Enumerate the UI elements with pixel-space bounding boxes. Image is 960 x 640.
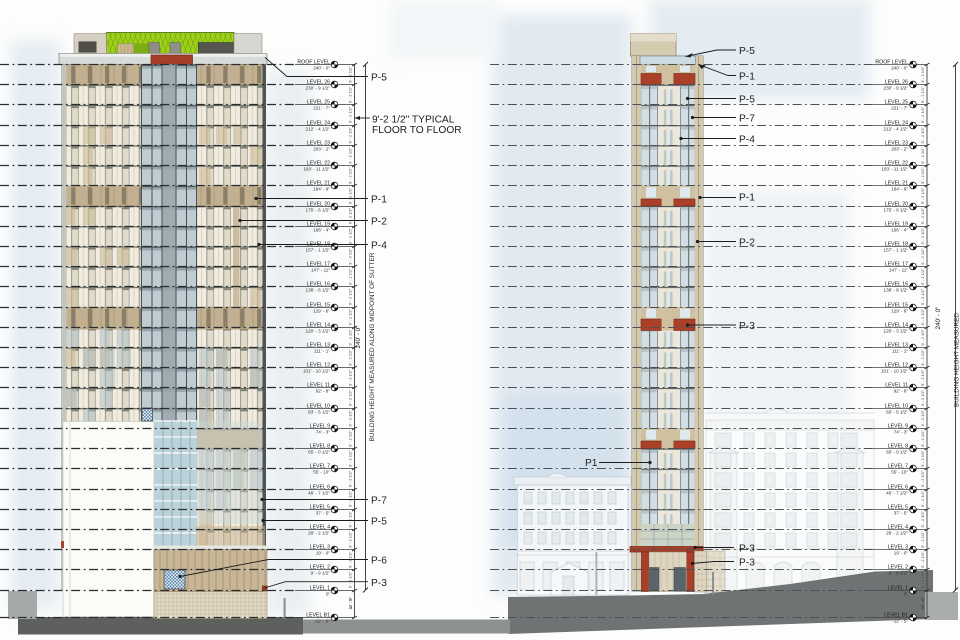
svg-text:9' - 2 1/2": 9' - 2 1/2" bbox=[920, 66, 925, 83]
svg-text:74' - 3": 74' - 3" bbox=[894, 430, 909, 435]
svg-text:46' - 7 1/2": 46' - 7 1/2" bbox=[886, 491, 908, 496]
svg-text:LEVEL 3: LEVEL 3 bbox=[310, 544, 330, 550]
svg-text:-12' - 5": -12' - 5" bbox=[314, 619, 330, 624]
svg-text:230' - 9 1/2": 230' - 9 1/2" bbox=[306, 86, 331, 91]
svg-text:LEVEL 11: LEVEL 11 bbox=[307, 382, 330, 388]
svg-text:LEVEL 8: LEVEL 8 bbox=[888, 443, 908, 449]
svg-text:LEVEL 26: LEVEL 26 bbox=[885, 79, 908, 85]
svg-text:221' - 7": 221' - 7" bbox=[313, 106, 330, 111]
svg-text:P1: P1 bbox=[585, 458, 598, 469]
svg-text:P-5: P-5 bbox=[739, 46, 755, 57]
svg-text:9' - 2 1/2": 9' - 2 1/2" bbox=[348, 409, 353, 426]
svg-text:111' - 1": 111' - 1" bbox=[314, 349, 330, 354]
svg-text:111' - 1": 111' - 1" bbox=[892, 349, 908, 354]
svg-text:P-1: P-1 bbox=[371, 195, 387, 206]
svg-text:9' - 2 1/2": 9' - 2 1/2" bbox=[348, 470, 353, 487]
svg-text:LEVEL 19: LEVEL 19 bbox=[885, 221, 908, 227]
svg-text:193' - 11 1/2": 193' - 11 1/2" bbox=[303, 167, 330, 172]
svg-text:9' - 2 1/2": 9' - 2 1/2" bbox=[920, 147, 925, 164]
svg-text:LEVEL 23: LEVEL 23 bbox=[885, 140, 908, 146]
svg-text:175' - 6 1/2": 175' - 6 1/2" bbox=[884, 208, 909, 213]
svg-text:ROOF LEVEL: ROOF LEVEL bbox=[875, 59, 908, 65]
svg-text:9' - 2 1/2": 9' - 2 1/2" bbox=[348, 531, 353, 548]
svg-text:12' - 6": 12' - 6" bbox=[920, 596, 925, 609]
svg-text:LEVEL 3: LEVEL 3 bbox=[888, 544, 908, 550]
svg-text:LEVEL 21: LEVEL 21 bbox=[307, 180, 330, 186]
svg-text:9' - 2 1/2": 9' - 2 1/2" bbox=[348, 187, 353, 204]
svg-text:LEVEL 22: LEVEL 22 bbox=[307, 160, 330, 166]
svg-text:LEVEL B1: LEVEL B1 bbox=[884, 612, 908, 618]
svg-text:166' - 4": 166' - 4" bbox=[313, 228, 330, 233]
svg-text:LEVEL 2: LEVEL 2 bbox=[888, 564, 908, 570]
svg-text:LEVEL 16: LEVEL 16 bbox=[307, 281, 330, 287]
svg-text:LEVEL 16: LEVEL 16 bbox=[885, 281, 908, 287]
svg-text:9' - 2 1/2": 9' - 2 1/2" bbox=[348, 106, 353, 123]
svg-text:LEVEL 12: LEVEL 12 bbox=[307, 362, 330, 368]
svg-text:-12' - 5": -12' - 5" bbox=[892, 619, 908, 624]
svg-text:9' - 2 1/2": 9' - 2 1/2" bbox=[920, 490, 925, 507]
svg-text:LEVEL 15: LEVEL 15 bbox=[885, 302, 908, 308]
svg-text:LEVEL 25: LEVEL 25 bbox=[885, 99, 908, 105]
svg-text:LEVEL 14: LEVEL 14 bbox=[307, 322, 330, 328]
svg-text:LEVEL 5: LEVEL 5 bbox=[888, 504, 908, 510]
svg-text:LEVEL 13: LEVEL 13 bbox=[885, 342, 908, 348]
svg-text:120' - 3 1/2": 120' - 3 1/2" bbox=[306, 329, 331, 334]
svg-text:LEVEL 20: LEVEL 20 bbox=[885, 201, 908, 207]
svg-text:19' - 0": 19' - 0" bbox=[894, 551, 909, 556]
svg-text:203' - 2": 203' - 2" bbox=[313, 147, 330, 152]
svg-text:9' - 2 1/2": 9' - 2 1/2" bbox=[348, 167, 353, 184]
svg-text:0": 0" bbox=[326, 592, 331, 597]
svg-text:9' - 2 1/2": 9' - 2 1/2" bbox=[920, 126, 925, 143]
svg-text:175' - 6 1/2": 175' - 6 1/2" bbox=[306, 208, 331, 213]
svg-text:LEVEL 23: LEVEL 23 bbox=[307, 140, 330, 146]
svg-text:9' - 2 1/2": 9' - 2 1/2" bbox=[920, 571, 925, 588]
svg-text:P-3: P-3 bbox=[739, 544, 755, 555]
svg-text:9' - 2 1/2": 9' - 2 1/2" bbox=[348, 308, 353, 325]
svg-text:9' - 2 1/2": 9' - 2 1/2" bbox=[348, 126, 353, 143]
svg-text:9' - 2 1/2": 9' - 2 1/2" bbox=[348, 430, 353, 447]
svg-text:LEVEL 4: LEVEL 4 bbox=[888, 524, 908, 530]
svg-text:9' - 2 1/2": 9' - 2 1/2" bbox=[348, 227, 353, 244]
svg-text:P-7: P-7 bbox=[739, 114, 755, 125]
svg-text:9' - 2 1/2": 9' - 2 1/2" bbox=[920, 167, 925, 184]
svg-text:46' - 7 1/2": 46' - 7 1/2" bbox=[308, 491, 330, 496]
svg-text:LEVEL 6: LEVEL 6 bbox=[888, 484, 908, 490]
svg-text:P-4: P-4 bbox=[739, 135, 755, 146]
svg-text:9' - 2 1/2": 9' - 2 1/2" bbox=[920, 308, 925, 325]
svg-text:0": 0" bbox=[904, 592, 909, 597]
svg-text:9' - 9 1/2": 9' - 9 1/2" bbox=[311, 571, 331, 576]
svg-text:83' - 5 1/2": 83' - 5 1/2" bbox=[308, 410, 330, 415]
svg-text:FLOOR TO FLOOR: FLOOR TO FLOOR bbox=[372, 125, 462, 136]
svg-text:LEVEL 25: LEVEL 25 bbox=[307, 99, 330, 105]
svg-text:65' - 0 1/2": 65' - 0 1/2" bbox=[308, 450, 330, 455]
svg-text:LEVEL 4: LEVEL 4 bbox=[310, 524, 330, 530]
svg-text:LEVEL 20: LEVEL 20 bbox=[307, 201, 330, 207]
svg-text:240' - 0": 240' - 0" bbox=[891, 66, 908, 71]
svg-text:P-3: P-3 bbox=[739, 558, 755, 569]
svg-text:92' - 8": 92' - 8" bbox=[894, 389, 909, 394]
svg-text:157' - 1 1/2": 157' - 1 1/2" bbox=[884, 248, 909, 253]
svg-text:P-1: P-1 bbox=[739, 72, 755, 83]
svg-text:19' - 0": 19' - 0" bbox=[316, 551, 331, 556]
svg-text:9' - 2 1/2": 9' - 2 1/2" bbox=[348, 389, 353, 406]
svg-text:LEVEL 10: LEVEL 10 bbox=[307, 403, 330, 409]
svg-text:LEVEL 22: LEVEL 22 bbox=[885, 160, 908, 166]
svg-text:28' - 2 1/2": 28' - 2 1/2" bbox=[886, 531, 908, 536]
svg-text:203' - 2": 203' - 2" bbox=[891, 147, 908, 152]
svg-text:9' - 2 1/2": 9' - 2 1/2" bbox=[920, 470, 925, 487]
svg-text:ROOF LEVEL: ROOF LEVEL bbox=[297, 59, 330, 65]
svg-text:55' - 10": 55' - 10" bbox=[313, 470, 330, 475]
svg-text:9' - 9 1/2": 9' - 9 1/2" bbox=[889, 571, 909, 576]
svg-text:212' - 4 1/2": 212' - 4 1/2" bbox=[884, 127, 909, 132]
svg-text:9' - 2 1/2": 9' - 2 1/2" bbox=[920, 106, 925, 123]
svg-text:9' - 2 1/2": 9' - 2 1/2" bbox=[920, 389, 925, 406]
svg-text:LEVEL 13: LEVEL 13 bbox=[307, 342, 330, 348]
svg-text:9' - 2 1/2": 9' - 2 1/2" bbox=[920, 369, 925, 386]
svg-text:120' - 3 1/2": 120' - 3 1/2" bbox=[884, 329, 909, 334]
svg-text:9' - 2 1/2": 9' - 2 1/2" bbox=[920, 248, 925, 265]
svg-text:P-5: P-5 bbox=[371, 73, 387, 84]
svg-text:9' - 2 1/2": 9' - 2 1/2" bbox=[348, 369, 353, 386]
svg-text:9' - 2 1/2": 9' - 2 1/2" bbox=[920, 227, 925, 244]
svg-text:9' - 2 1/2": 9' - 2 1/2" bbox=[348, 268, 353, 285]
svg-text:9' - 2 1/2": 9' - 2 1/2" bbox=[348, 288, 353, 305]
svg-text:LEVEL 26: LEVEL 26 bbox=[307, 79, 330, 85]
svg-text:P-5: P-5 bbox=[739, 95, 755, 106]
svg-text:28' - 2 1/2": 28' - 2 1/2" bbox=[308, 531, 330, 536]
svg-text:LEVEL B1: LEVEL B1 bbox=[306, 612, 330, 618]
svg-text:9' - 2 1/2": 9' - 2 1/2" bbox=[920, 430, 925, 447]
svg-text:37' - 5": 37' - 5" bbox=[894, 511, 909, 516]
svg-text:240' - 0": 240' - 0" bbox=[313, 66, 330, 71]
svg-text:P-2: P-2 bbox=[739, 238, 755, 249]
svg-text:LEVEL 6: LEVEL 6 bbox=[310, 484, 330, 490]
svg-text:BUILDING HEIGHT MEASURED ALONG: BUILDING HEIGHT MEASURED ALONG MIDPOINT … bbox=[369, 252, 376, 441]
svg-text:9' - 2 1/2": 9' - 2 1/2" bbox=[920, 510, 925, 527]
svg-text:9' - 2 1/2": 9' - 2 1/2" bbox=[920, 86, 925, 103]
svg-text:9' - 2 1/2": 9' - 2 1/2" bbox=[348, 207, 353, 224]
svg-text:55' - 10": 55' - 10" bbox=[891, 470, 908, 475]
svg-text:129' - 6": 129' - 6" bbox=[313, 309, 330, 314]
svg-text:9' - 2 1/2": 9' - 2 1/2" bbox=[920, 551, 925, 568]
svg-text:9' - 2 1/2": 9' - 2 1/2" bbox=[920, 409, 925, 426]
svg-text:LEVEL 19: LEVEL 19 bbox=[307, 221, 330, 227]
svg-text:LEVEL 9: LEVEL 9 bbox=[310, 423, 330, 429]
svg-text:9' - 2 1/2": 9' - 2 1/2" bbox=[348, 490, 353, 507]
svg-text:74' - 3": 74' - 3" bbox=[316, 430, 331, 435]
svg-text:LEVEL 1: LEVEL 1 bbox=[888, 585, 908, 591]
svg-text:129' - 6": 129' - 6" bbox=[891, 309, 908, 314]
svg-text:P-1: P-1 bbox=[739, 193, 755, 204]
svg-text:147' - 11": 147' - 11" bbox=[311, 268, 330, 273]
svg-text:9' - 2 1/2": 9' - 2 1/2" bbox=[348, 450, 353, 467]
svg-text:9' - 2 1/2": 9' - 2 1/2" bbox=[348, 571, 353, 588]
svg-text:9' - 2 1/2": 9' - 2 1/2" bbox=[348, 86, 353, 103]
svg-text:138' - 8 1/2": 138' - 8 1/2" bbox=[306, 288, 331, 293]
svg-text:9' - 2 1/2": 9' - 2 1/2" bbox=[920, 187, 925, 204]
svg-text:157' - 1 1/2": 157' - 1 1/2" bbox=[306, 248, 331, 253]
svg-text:9' - 2 1/2": 9' - 2 1/2" bbox=[920, 450, 925, 467]
svg-text:221' - 7": 221' - 7" bbox=[891, 106, 908, 111]
svg-text:P-6: P-6 bbox=[371, 556, 387, 567]
svg-text:9' - 2 1/2": 9' - 2 1/2" bbox=[348, 66, 353, 83]
svg-text:9' - 2 1/2": 9' - 2 1/2" bbox=[348, 248, 353, 265]
svg-text:101' - 10 1/2": 101' - 10 1/2" bbox=[881, 369, 908, 374]
svg-text:LEVEL 17: LEVEL 17 bbox=[885, 261, 908, 267]
svg-text:9' - 2 1/2": 9' - 2 1/2" bbox=[348, 147, 353, 164]
svg-text:LEVEL 1: LEVEL 1 bbox=[310, 585, 330, 591]
svg-text:P-7: P-7 bbox=[371, 496, 387, 507]
svg-text:9' - 2 1/2": 9' - 2 1/2" bbox=[920, 288, 925, 305]
svg-text:9' - 2 1/2": 9' - 2 1/2" bbox=[920, 329, 925, 346]
svg-text:166' - 4": 166' - 4" bbox=[891, 228, 908, 233]
svg-text:LEVEL 11: LEVEL 11 bbox=[885, 382, 908, 388]
svg-text:9' - 2 1/2": 9' - 2 1/2" bbox=[920, 268, 925, 285]
svg-text:65' - 0 1/2": 65' - 0 1/2" bbox=[886, 450, 908, 455]
svg-text:LEVEL 14: LEVEL 14 bbox=[885, 322, 908, 328]
svg-text:9'-2 1/2" TYPICAL: 9'-2 1/2" TYPICAL bbox=[372, 114, 455, 125]
svg-text:LEVEL 5: LEVEL 5 bbox=[310, 504, 330, 510]
svg-text:9' - 2 1/2": 9' - 2 1/2" bbox=[348, 349, 353, 366]
svg-text:240' - 0": 240' - 0" bbox=[355, 326, 362, 349]
svg-text:P-3: P-3 bbox=[371, 578, 387, 589]
svg-text:LEVEL 9: LEVEL 9 bbox=[888, 423, 908, 429]
svg-text:LEVEL 24: LEVEL 24 bbox=[885, 120, 908, 126]
svg-text:12' - 6": 12' - 6" bbox=[348, 596, 353, 609]
svg-text:184' - 9": 184' - 9" bbox=[891, 187, 908, 192]
svg-text:LEVEL 10: LEVEL 10 bbox=[885, 403, 908, 409]
svg-text:193' - 11 1/2": 193' - 11 1/2" bbox=[881, 167, 908, 172]
svg-text:LEVEL 17: LEVEL 17 bbox=[307, 261, 330, 267]
svg-text:138' - 8 1/2": 138' - 8 1/2" bbox=[884, 288, 909, 293]
svg-text:LEVEL 12: LEVEL 12 bbox=[885, 362, 908, 368]
svg-text:P-3: P-3 bbox=[739, 321, 755, 332]
svg-text:9' - 2 1/2": 9' - 2 1/2" bbox=[348, 329, 353, 346]
svg-text:LEVEL 7: LEVEL 7 bbox=[310, 463, 330, 469]
svg-text:240' - 0": 240' - 0" bbox=[935, 307, 942, 330]
svg-text:184' - 9": 184' - 9" bbox=[313, 187, 330, 192]
svg-text:9' - 2 1/2": 9' - 2 1/2" bbox=[920, 349, 925, 366]
svg-text:92' - 8": 92' - 8" bbox=[316, 389, 331, 394]
svg-text:P-5: P-5 bbox=[371, 517, 387, 528]
svg-text:101' - 10 1/2": 101' - 10 1/2" bbox=[303, 369, 330, 374]
svg-text:LEVEL 24: LEVEL 24 bbox=[307, 120, 330, 126]
svg-text:9' - 2 1/2": 9' - 2 1/2" bbox=[348, 510, 353, 527]
svg-text:BUILDING HEIGHT MEASURED: BUILDING HEIGHT MEASURED bbox=[954, 313, 960, 407]
svg-text:LEVEL 7: LEVEL 7 bbox=[888, 463, 908, 469]
svg-text:83' - 5 1/2": 83' - 5 1/2" bbox=[886, 410, 908, 415]
svg-text:LEVEL 2: LEVEL 2 bbox=[310, 564, 330, 570]
svg-text:230' - 9 1/2": 230' - 9 1/2" bbox=[884, 86, 909, 91]
svg-text:LEVEL 18: LEVEL 18 bbox=[885, 241, 908, 247]
svg-text:9' - 2 1/2": 9' - 2 1/2" bbox=[920, 207, 925, 224]
svg-text:LEVEL 21: LEVEL 21 bbox=[885, 180, 908, 186]
svg-text:147' - 11": 147' - 11" bbox=[889, 268, 908, 273]
svg-text:37' - 5": 37' - 5" bbox=[316, 511, 331, 516]
svg-text:LEVEL 8: LEVEL 8 bbox=[310, 443, 330, 449]
svg-text:9' - 2 1/2": 9' - 2 1/2" bbox=[920, 531, 925, 548]
svg-text:LEVEL 15: LEVEL 15 bbox=[307, 302, 330, 308]
svg-text:P-4: P-4 bbox=[371, 241, 387, 252]
svg-text:212' - 4 1/2": 212' - 4 1/2" bbox=[306, 127, 331, 132]
svg-text:P-2: P-2 bbox=[371, 217, 387, 228]
